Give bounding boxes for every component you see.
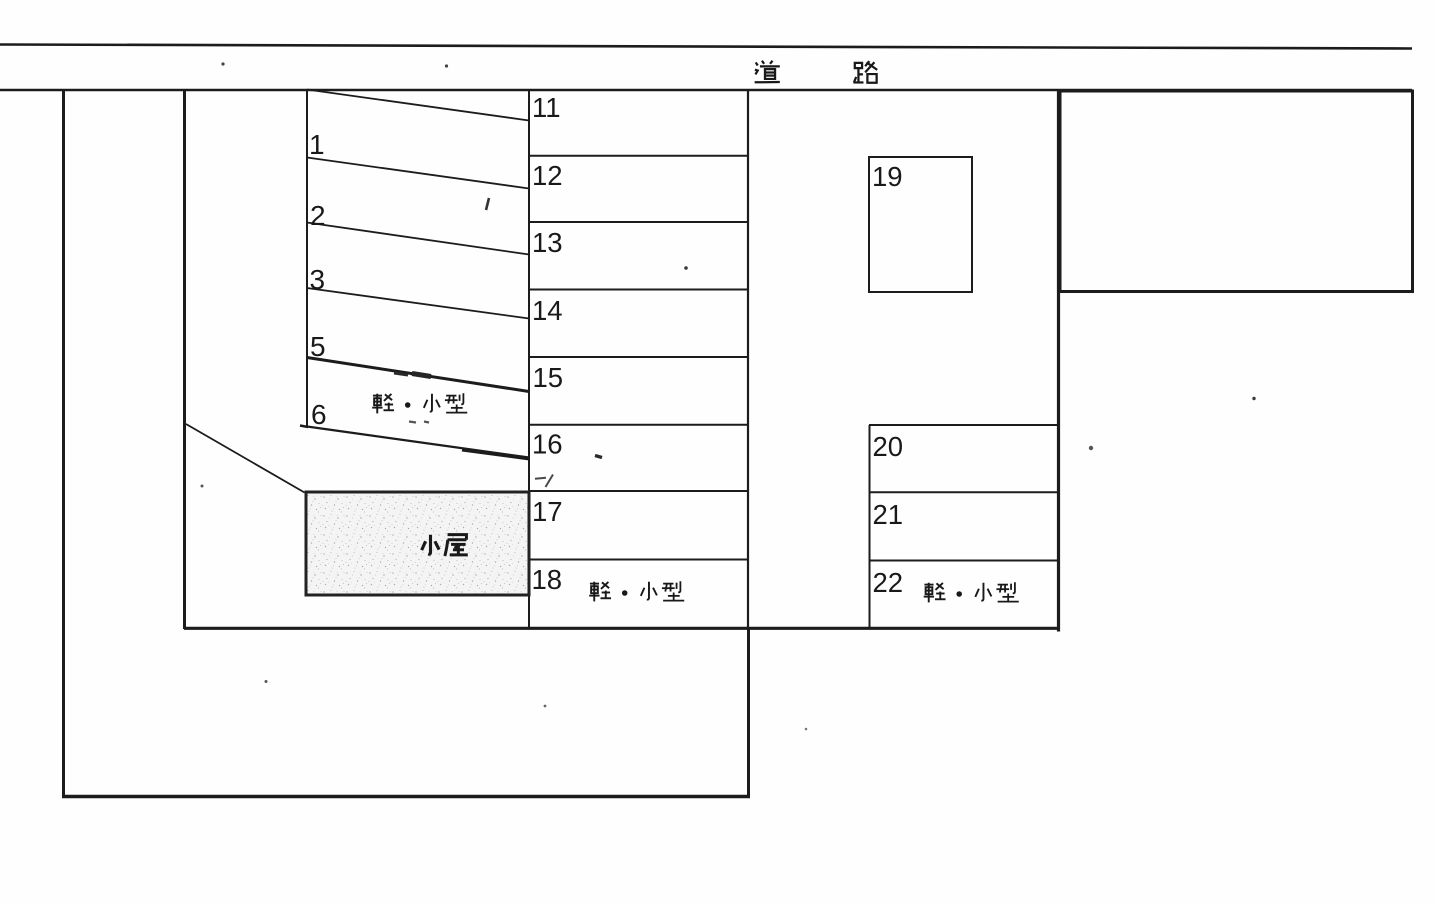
svg-text:21: 21: [873, 499, 904, 530]
svg-text:12: 12: [532, 160, 563, 191]
svg-text:14: 14: [532, 295, 563, 326]
svg-text:1: 1: [309, 129, 325, 160]
svg-text:13: 13: [532, 227, 563, 258]
svg-text:16: 16: [532, 429, 563, 460]
svg-text:11: 11: [532, 92, 561, 123]
svg-text:20: 20: [873, 431, 904, 462]
svg-text:6: 6: [311, 399, 327, 430]
svg-text:17: 17: [532, 496, 563, 527]
svg-text:15: 15: [533, 362, 564, 393]
svg-text:3: 3: [310, 264, 326, 295]
svg-text:19: 19: [872, 161, 903, 192]
svg-text:5: 5: [310, 331, 326, 362]
svg-text:22: 22: [873, 567, 904, 598]
svg-text:18: 18: [532, 564, 563, 595]
svg-text:2: 2: [310, 200, 326, 231]
